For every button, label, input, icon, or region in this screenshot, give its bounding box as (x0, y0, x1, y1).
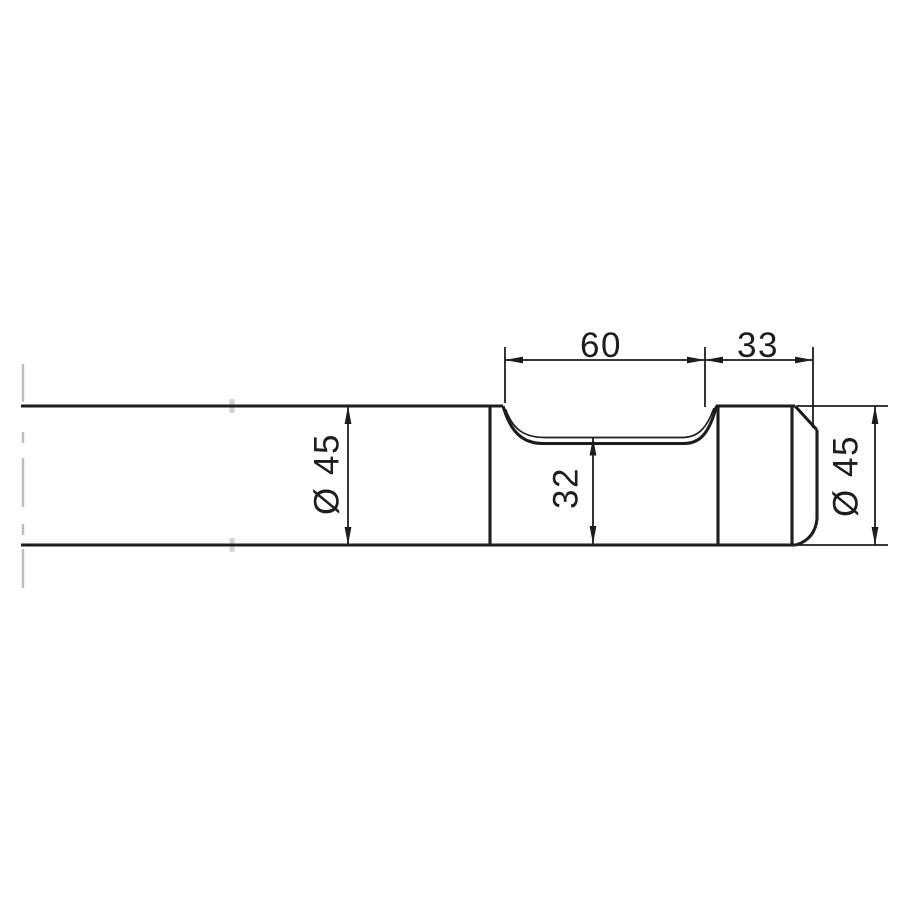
dim-32-label: 32 (547, 467, 586, 509)
arrow-dia45-left-top (345, 406, 352, 424)
arrow-32-top (590, 438, 597, 456)
arrow-32-bottom (590, 526, 597, 544)
dim-60-label: 60 (580, 326, 622, 365)
groove-inner-path (506, 408, 715, 438)
technical-drawing: 60 33 Ø 45 32 Ø 45 (0, 0, 900, 900)
arrow-dia45-right-top (872, 406, 879, 424)
part-outline (21, 406, 817, 545)
arrow-33-right (795, 357, 813, 364)
arrow-33-left (705, 357, 723, 364)
dim-dia45-right-label: Ø 45 (827, 435, 866, 517)
dimension-labels: 60 33 Ø 45 32 Ø 45 (308, 326, 866, 517)
drawing-canvas: 60 33 Ø 45 32 Ø 45 (0, 0, 900, 900)
dim-33-label: 33 (737, 326, 779, 365)
arrow-60-right (687, 357, 705, 364)
arrow-dia45-right-bottom (872, 527, 879, 545)
arrow-dia45-left-bottom (345, 527, 352, 545)
arrow-60-left (505, 357, 523, 364)
dimension-lines (348, 347, 888, 545)
dimension-arrows (345, 357, 879, 545)
groove-inner-edge (506, 408, 715, 438)
end-face (796, 430, 817, 545)
dim-dia45-left-label: Ø 45 (308, 433, 347, 515)
